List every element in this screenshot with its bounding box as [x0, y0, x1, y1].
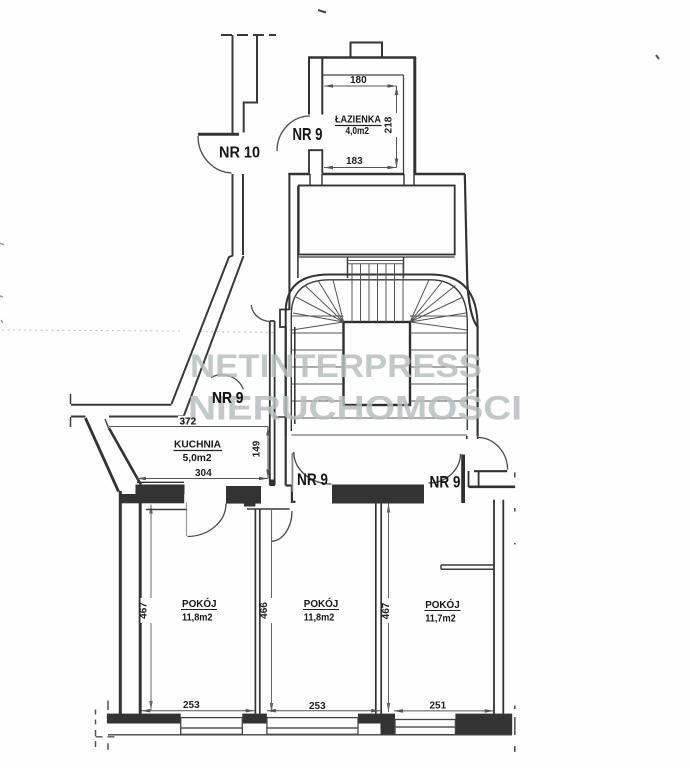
- svg-text:467: 467: [139, 602, 150, 619]
- svg-text:218: 218: [384, 116, 395, 133]
- svg-text:11,7m2: 11,7m2: [425, 613, 456, 625]
- svg-text:11,8m2: 11,8m2: [304, 612, 335, 624]
- svg-text:149: 149: [252, 440, 263, 457]
- svg-text:NR 9: NR 9: [297, 471, 328, 489]
- svg-text:253: 253: [309, 701, 326, 712]
- svg-text:372: 372: [180, 417, 197, 428]
- svg-text:POKÓJ: POKÓJ: [182, 597, 217, 610]
- svg-text:NR 9: NR 9: [212, 390, 244, 407]
- svg-text:NETINTERPRESS: NETINTERPRESS: [190, 348, 482, 384]
- svg-text:ŁAZIENKA: ŁAZIENKA: [335, 114, 381, 126]
- svg-text:466: 466: [259, 602, 270, 619]
- svg-text:4,0m2: 4,0m2: [346, 125, 370, 137]
- svg-text:253: 253: [183, 700, 200, 711]
- svg-text:5,0m2: 5,0m2: [183, 452, 212, 464]
- svg-text:183: 183: [346, 156, 363, 167]
- svg-text:467: 467: [381, 602, 392, 619]
- svg-text:POKÓJ: POKÓJ: [425, 598, 460, 611]
- svg-text:NR 9: NR 9: [293, 124, 323, 144]
- svg-text:180: 180: [350, 75, 367, 86]
- svg-text:251: 251: [430, 701, 447, 712]
- svg-text:KUCHNIA: KUCHNIA: [174, 439, 221, 451]
- svg-text:304: 304: [195, 468, 212, 479]
- svg-text:NR 9: NR 9: [430, 474, 461, 492]
- svg-text:11,8m2: 11,8m2: [182, 612, 213, 624]
- svg-text:POKÓJ: POKÓJ: [304, 597, 339, 610]
- svg-text:NR 10: NR 10: [219, 145, 260, 162]
